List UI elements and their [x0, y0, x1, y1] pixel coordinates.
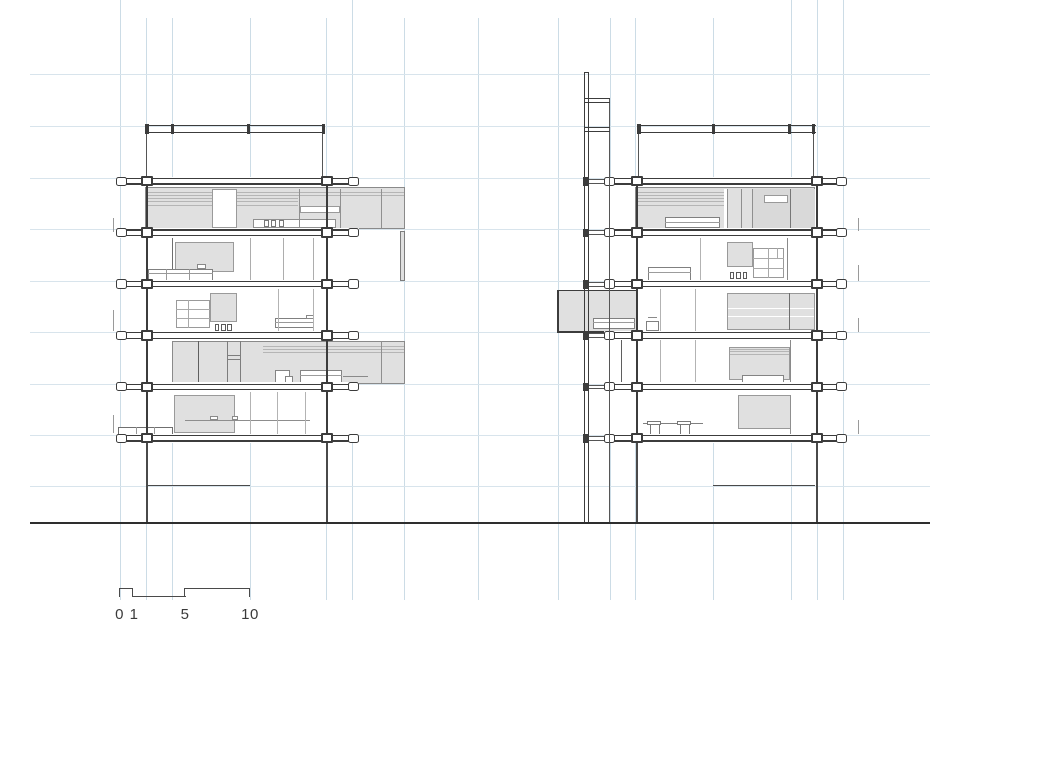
shaft-rung [584, 131, 610, 132]
shaft-rung [584, 98, 610, 99]
slab-column-joint [321, 382, 332, 392]
cantilever-sofa-line [593, 322, 635, 323]
basement-column [816, 440, 817, 522]
slab-bottom-line [122, 440, 353, 441]
scale-label-0: 0 [115, 606, 124, 623]
floor5-stool-leg [689, 425, 690, 433]
parapet-post [171, 124, 175, 134]
floor3-chair [646, 321, 659, 332]
slab-end-tab [116, 228, 127, 237]
slab-column-joint [811, 433, 822, 443]
grid-v [120, 0, 121, 600]
scalebar-tick [184, 588, 185, 598]
floor1-counter-box [271, 220, 276, 227]
floor4-mullion [695, 340, 696, 384]
floor1-louver [147, 192, 404, 193]
slab-bottom-line [610, 235, 843, 236]
floor3-panel-divider [789, 293, 790, 330]
slab-bottom-line [610, 389, 843, 390]
slab-column-joint [141, 227, 152, 237]
slab-end-tab [348, 279, 359, 288]
slab-top-line [610, 384, 843, 385]
floor4-wall [790, 340, 791, 384]
floor3-mullion [278, 288, 279, 332]
floor1-mullion [381, 189, 382, 228]
parapet-post [322, 124, 326, 134]
slab-column-joint [321, 227, 332, 237]
floor4-ledge [343, 376, 368, 377]
floor2-mullion [283, 236, 284, 280]
floor1-mullion [752, 189, 753, 229]
floor2-sofa-line [648, 272, 691, 273]
slab-end-tab [348, 177, 359, 186]
floor3-panel-gap [728, 316, 814, 318]
slab-top-line [122, 435, 353, 436]
slab-column-joint [321, 433, 332, 443]
slab-bottom-line [610, 183, 843, 184]
grid-h [30, 74, 930, 75]
grid-v [404, 18, 405, 600]
floor3-stool [227, 324, 232, 331]
floor2-shelf-h [753, 268, 784, 269]
scale-label-10: 10 [241, 606, 259, 623]
floor4-shelf-line [227, 359, 241, 360]
floor5-stool-leg [659, 425, 660, 433]
floor3-stool [215, 324, 220, 331]
slab-end-tab [836, 177, 847, 186]
floor1-louver [637, 198, 725, 199]
scalebar-segment [184, 588, 250, 589]
slab-column-joint [631, 330, 642, 340]
floor1-door [212, 189, 238, 228]
scale-label-1: 1 [130, 606, 139, 623]
floor4-louver [730, 354, 790, 355]
slab-column-joint [811, 330, 822, 340]
slab-bottom-line [610, 286, 843, 287]
floor4-shelf-line [227, 355, 241, 356]
floor2-mullion [250, 236, 251, 280]
floor3-sofa [275, 318, 314, 328]
floor2-stool [743, 272, 748, 279]
floor2-mullion [700, 236, 701, 280]
floor3-panel-gap [728, 308, 814, 310]
slab-top-line [610, 281, 843, 282]
floor5-edge [790, 395, 791, 435]
floor5-stool-leg [650, 425, 651, 433]
floor4-louver [263, 352, 404, 353]
level-tick [113, 310, 114, 331]
floor5-grey-panel [738, 395, 791, 429]
level-tick [858, 218, 859, 231]
column [816, 183, 818, 440]
slab-bottom-line [122, 338, 353, 339]
floor3-sofa-line [275, 322, 314, 323]
slab-top-line [610, 332, 843, 333]
level-tick [858, 318, 859, 332]
slab-top-line [122, 332, 353, 333]
floor3-shelf-h [176, 318, 210, 319]
slab-column-joint [631, 176, 642, 186]
floor4-mullion [227, 341, 228, 384]
floor1-mullion [299, 189, 300, 228]
grid-h [30, 486, 930, 487]
floor3-mullion [695, 288, 696, 332]
slab-top-line [122, 178, 353, 179]
slab-top-line [610, 435, 843, 436]
floor3-banded-panel [727, 293, 815, 330]
slab-end-tab [836, 228, 847, 237]
shaft-rung [584, 127, 610, 128]
floor2-grey-panel [727, 242, 753, 268]
level-tick [858, 420, 859, 434]
floor2-wall [787, 236, 788, 280]
slab-bottom-line [610, 338, 843, 339]
slab-column-joint [811, 382, 822, 392]
slab-column-joint [811, 176, 822, 186]
floor4-wall [621, 340, 622, 384]
slab-top-line [122, 229, 353, 230]
floor5-mark [210, 416, 218, 420]
floor1-louver [637, 192, 725, 193]
cantilever-sofa [593, 318, 635, 329]
shaft-wall [588, 72, 589, 522]
scalebar-tick [249, 588, 250, 598]
floor4-mullion [660, 340, 661, 384]
floor3-mullion [660, 288, 661, 332]
floor3-shelf-v [188, 300, 189, 328]
slab-end-tab [348, 228, 359, 237]
floor1-counter-box [264, 220, 269, 227]
shaft-side-wall [609, 99, 610, 522]
slab-column-joint [811, 227, 822, 237]
shaft-cap [584, 72, 589, 73]
slab-end-tab [116, 279, 127, 288]
slab-column-joint [631, 382, 642, 392]
floor5-grey-panel [174, 395, 236, 434]
shaft-slab-joint [583, 331, 590, 340]
cantilever-box-left [557, 290, 559, 333]
slab-end-tab [348, 434, 359, 443]
floor2-shelf-v [777, 248, 778, 258]
shaft-wall [584, 72, 585, 522]
parapet-support [322, 134, 323, 178]
floor3-mullion [313, 288, 314, 332]
floor1-louver [637, 195, 725, 196]
scalebar-segment [132, 596, 186, 597]
shaft-slab-joint [583, 229, 590, 238]
floor5-mullion [277, 391, 278, 434]
slab-top-line [610, 178, 843, 179]
scalebar-tick [119, 588, 120, 598]
floor1-counter-box [279, 220, 284, 227]
floor1-shelf [300, 206, 340, 214]
parapet-post [145, 124, 149, 134]
floor2-stool [730, 272, 735, 279]
column [636, 183, 638, 440]
parapet-post [712, 124, 716, 134]
floor4-louver [263, 346, 404, 347]
level-tick [113, 218, 114, 232]
floor1-louver [147, 195, 404, 196]
level-tick [858, 265, 859, 281]
slab-column-joint [141, 382, 152, 392]
slab-column-joint [631, 279, 642, 289]
slab-column-joint [141, 433, 152, 443]
scalebar-segment [119, 588, 134, 589]
floor5-shelf-line [185, 420, 310, 421]
column [146, 183, 148, 440]
slab-column-joint [631, 433, 642, 443]
floor1-louver [637, 205, 725, 206]
parapet-support [146, 134, 147, 178]
floor5-stool-leg [680, 425, 681, 433]
shaft-slab-joint [583, 177, 590, 186]
slab-end-tab [116, 177, 127, 186]
scale-label-5: 5 [181, 606, 190, 623]
floor3-stool [221, 324, 226, 331]
parapet-support [638, 134, 639, 178]
slab-column-joint [811, 279, 822, 289]
floor1-mullion [727, 189, 728, 229]
floor2-stool [736, 272, 741, 279]
floor4-sofa-line [300, 375, 342, 376]
slab-column-joint [321, 176, 332, 186]
level-tick [113, 415, 114, 433]
floor5-mullion [305, 391, 306, 434]
floor4-mullion [381, 341, 382, 384]
facade-fin [400, 231, 406, 281]
cantilever-box-top [557, 290, 638, 292]
floor2-cabinet-top [197, 264, 206, 268]
slab-end-tab [836, 331, 847, 340]
floor5-mark [232, 416, 238, 420]
shaft-rung [584, 102, 610, 103]
floor4-louver [263, 349, 404, 350]
basement-column [326, 440, 327, 522]
floor1-mullion [340, 189, 341, 228]
slab-top-line [610, 229, 843, 230]
grid-v [843, 0, 844, 600]
parapet-post [637, 124, 641, 134]
parapet-support [813, 134, 814, 178]
slab-column-joint [321, 330, 332, 340]
slab-end-tab [836, 279, 847, 288]
drawing-canvas: 0 1 5 10 [0, 0, 1043, 782]
floor2-sofa [648, 267, 691, 280]
slab-bottom-line [122, 183, 353, 184]
slab-column-joint [631, 227, 642, 237]
slab-end-tab [836, 434, 847, 443]
column [326, 183, 328, 440]
shaft-slab-joint [583, 434, 590, 443]
slab-end-tab [348, 331, 359, 340]
basement-line [713, 485, 815, 486]
floor5-mullion [250, 391, 251, 434]
floor4-mullion [240, 341, 241, 384]
floor4-louver [730, 351, 790, 352]
basement-line [148, 485, 251, 486]
floor3-shelf-h [176, 309, 210, 310]
slab-bottom-line [610, 440, 843, 441]
floor3-chair-back [648, 317, 657, 318]
floor2-shelf-v [768, 248, 769, 278]
slab-end-tab [116, 382, 127, 391]
floor1-sofa-line [665, 222, 720, 223]
slab-end-tab [116, 331, 127, 340]
slab-column-joint [141, 279, 152, 289]
parapet-post [247, 124, 251, 134]
floor3-shelf-grid [176, 300, 210, 328]
slab-end-tab [116, 434, 127, 443]
parapet-post [788, 124, 792, 134]
basement-column [146, 440, 147, 522]
floor1-sofa [665, 217, 720, 228]
floor1-mullion [741, 189, 742, 229]
slab-end-tab [348, 382, 359, 391]
floor1-mullion [790, 189, 791, 229]
floor2-mullion [313, 236, 314, 280]
slab-top-line [122, 281, 353, 282]
floor1-shelf [764, 195, 788, 203]
slab-bottom-line [122, 286, 353, 287]
floor2-shelf-h [753, 258, 784, 259]
shaft-slab-joint [583, 280, 590, 289]
ground-line [30, 522, 930, 524]
floor2-cabinet-line [148, 273, 213, 274]
shaft-slab-joint [583, 383, 590, 392]
basement-column [636, 440, 637, 522]
slab-bottom-line [122, 389, 353, 390]
slab-column-joint [141, 330, 152, 340]
slab-bottom-line [122, 235, 353, 236]
floor3-grey-panel [210, 293, 238, 323]
parapet-post [812, 124, 816, 134]
slab-column-joint [321, 279, 332, 289]
floor4-louver [730, 349, 790, 350]
floor1-louver [637, 201, 725, 202]
slab-top-line [122, 384, 353, 385]
slab-end-tab [836, 382, 847, 391]
slab-column-joint [141, 176, 152, 186]
grid-v [478, 18, 479, 600]
floor4-wall [198, 341, 199, 384]
